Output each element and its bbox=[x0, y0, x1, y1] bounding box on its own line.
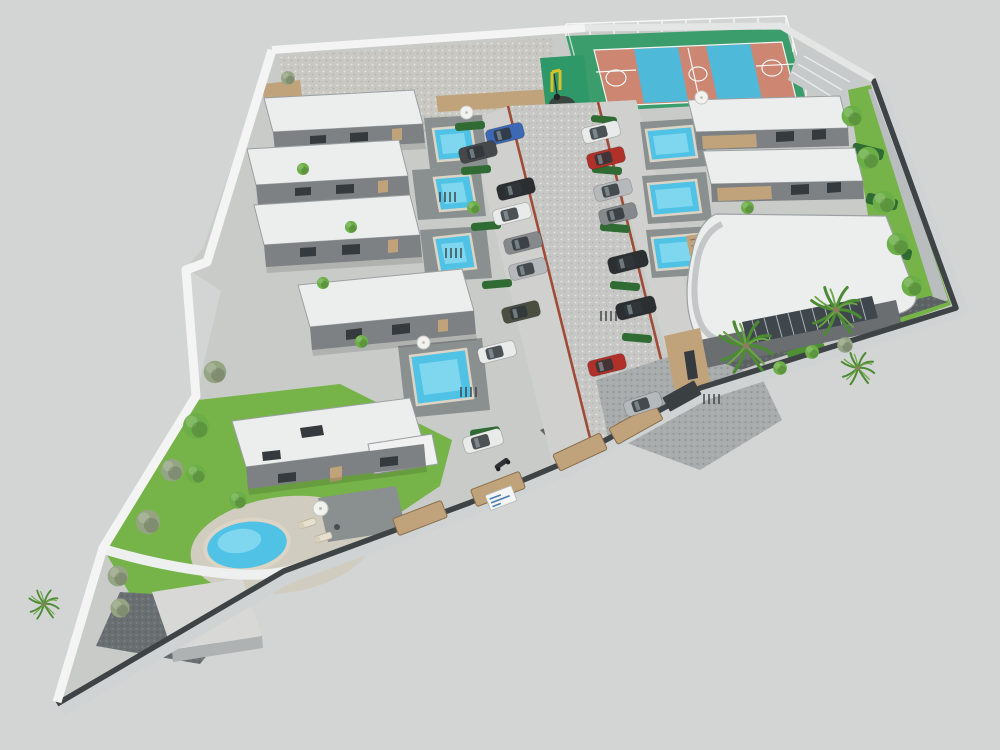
parasol bbox=[313, 501, 328, 516]
shrub bbox=[317, 277, 329, 289]
tree bbox=[183, 413, 209, 439]
tree bbox=[887, 233, 910, 256]
tree bbox=[110, 598, 129, 617]
tree bbox=[902, 276, 923, 297]
render-canvas bbox=[0, 0, 1000, 750]
tree bbox=[229, 491, 246, 508]
tree bbox=[873, 191, 896, 214]
shrub bbox=[355, 335, 368, 348]
tree bbox=[186, 464, 205, 483]
shrub bbox=[467, 201, 480, 214]
shrub bbox=[805, 345, 819, 359]
patio-table bbox=[334, 524, 340, 530]
parasol bbox=[695, 91, 708, 104]
tree bbox=[161, 459, 184, 482]
tree bbox=[136, 510, 160, 534]
tree bbox=[108, 566, 129, 587]
shrub bbox=[345, 221, 357, 233]
parasol bbox=[460, 106, 473, 119]
tree bbox=[842, 106, 863, 127]
shrub bbox=[741, 201, 754, 214]
shrub bbox=[297, 163, 309, 175]
parasol bbox=[417, 336, 430, 349]
shrub bbox=[281, 71, 295, 85]
shrub bbox=[837, 337, 853, 353]
tree bbox=[857, 147, 880, 170]
tree bbox=[204, 361, 227, 384]
site-plan-render bbox=[0, 0, 1000, 750]
shrub bbox=[773, 361, 787, 375]
